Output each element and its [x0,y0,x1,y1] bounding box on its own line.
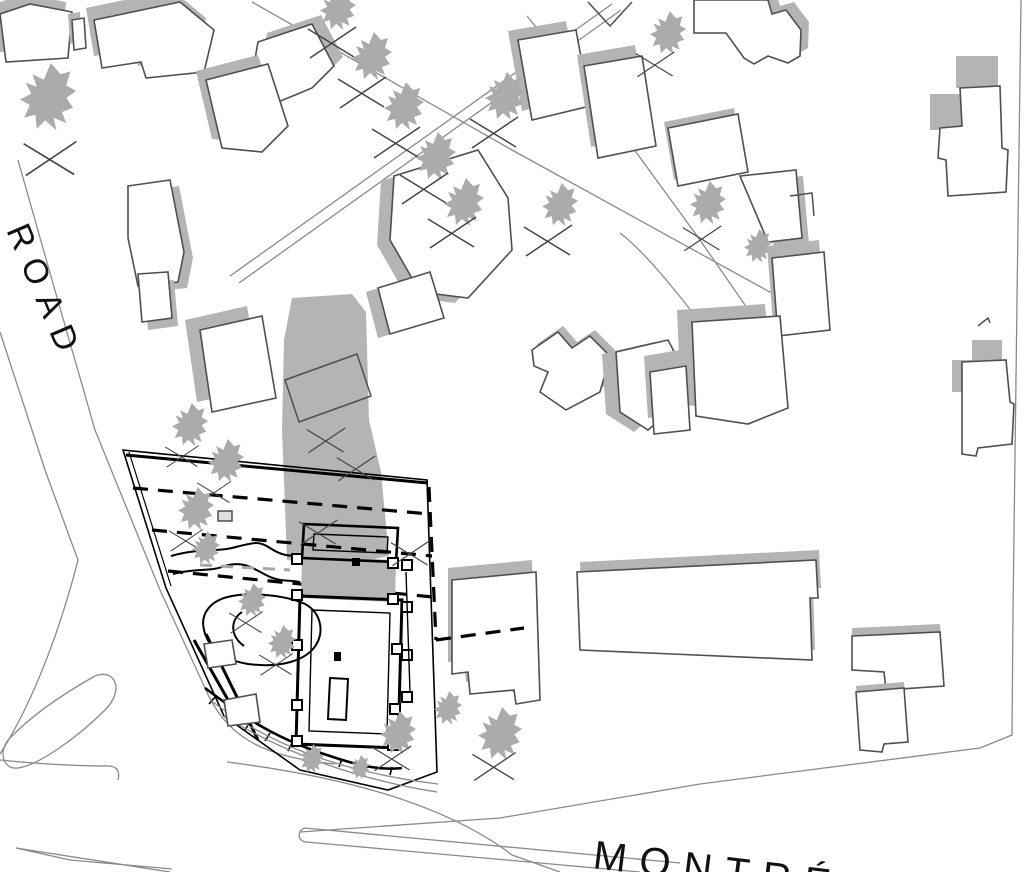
column [292,736,302,746]
tree-x-mark [372,127,420,158]
building [68,12,86,50]
core-mark [334,652,341,661]
tree-blob [208,439,244,482]
column [292,700,302,710]
building-shadow [972,340,1002,362]
building [532,326,615,410]
building-outline [856,688,908,752]
building-outline [668,114,748,186]
tree-blob [744,229,772,263]
building [508,21,590,120]
building [664,108,748,186]
tree-blob [542,183,578,226]
building-outline [650,366,690,434]
site-plan-svg: ROAD MONTRÉAL [0,0,1024,872]
road-wedge [16,848,172,872]
site-plan-drawing: ROAD MONTRÉAL [0,0,1024,872]
building-shadow [956,56,998,88]
building [930,56,1008,196]
building [852,624,944,690]
tree-blob [650,11,686,54]
tree-x-mark [470,117,518,148]
building [0,0,72,62]
building-outline [577,560,818,660]
column [402,692,412,702]
survey-tick [978,318,990,326]
tree-blob [172,403,208,446]
curb-line [0,760,119,780]
column [402,650,412,660]
east-colonnade-line [406,572,410,692]
traffic-island [3,674,116,768]
column [292,554,302,564]
shed-outline [204,640,236,668]
building [677,304,788,424]
shed-outline [224,694,260,726]
building [577,45,656,158]
building-outline [852,632,944,690]
ground-patch [350,755,370,779]
tree-blob [690,181,726,224]
column [388,594,398,604]
tree-blob [485,72,525,120]
tree-blob [434,691,462,725]
tree-x-mark [24,142,77,176]
street-label: MONTRÉAL [591,832,920,872]
building-shadow [930,94,962,130]
core-mark [352,558,360,566]
tree-blob [192,531,220,565]
turnaround-inner-curb [233,612,244,646]
tree-blob [478,707,522,760]
tree-x-mark [524,225,572,256]
ground-patch [300,744,324,773]
column [292,640,302,650]
building-outline [962,360,1014,456]
building [952,318,1014,456]
building [366,272,444,338]
column [292,590,302,600]
building-outline [138,272,172,322]
tree-blob [352,32,392,80]
building [577,550,821,660]
setback-line-solid [126,455,428,483]
building [138,272,178,330]
tree-blob [384,82,424,130]
driveway-edge [173,564,300,582]
building [185,306,276,412]
utility-box [218,511,232,521]
tree-x-mark [338,77,386,108]
building-outline [200,316,276,412]
column [392,644,402,654]
tree-x-mark [472,753,515,781]
road-edge-west-left [0,332,78,754]
stair-core [328,678,348,720]
building-outline [692,316,788,424]
setback-line-dashed [133,488,430,514]
building-outline [740,170,802,242]
column [390,704,400,714]
building-outline [0,4,72,62]
tree-blob [20,63,76,130]
building-outline [694,0,801,64]
sidewalk-curve-south [227,762,560,872]
road-label: ROAD [0,218,91,367]
building [694,0,809,64]
building [86,0,214,78]
building-outline [452,572,540,704]
building [856,682,908,752]
column [402,560,412,570]
building-outline [72,18,86,50]
driveway-edge [171,543,300,556]
